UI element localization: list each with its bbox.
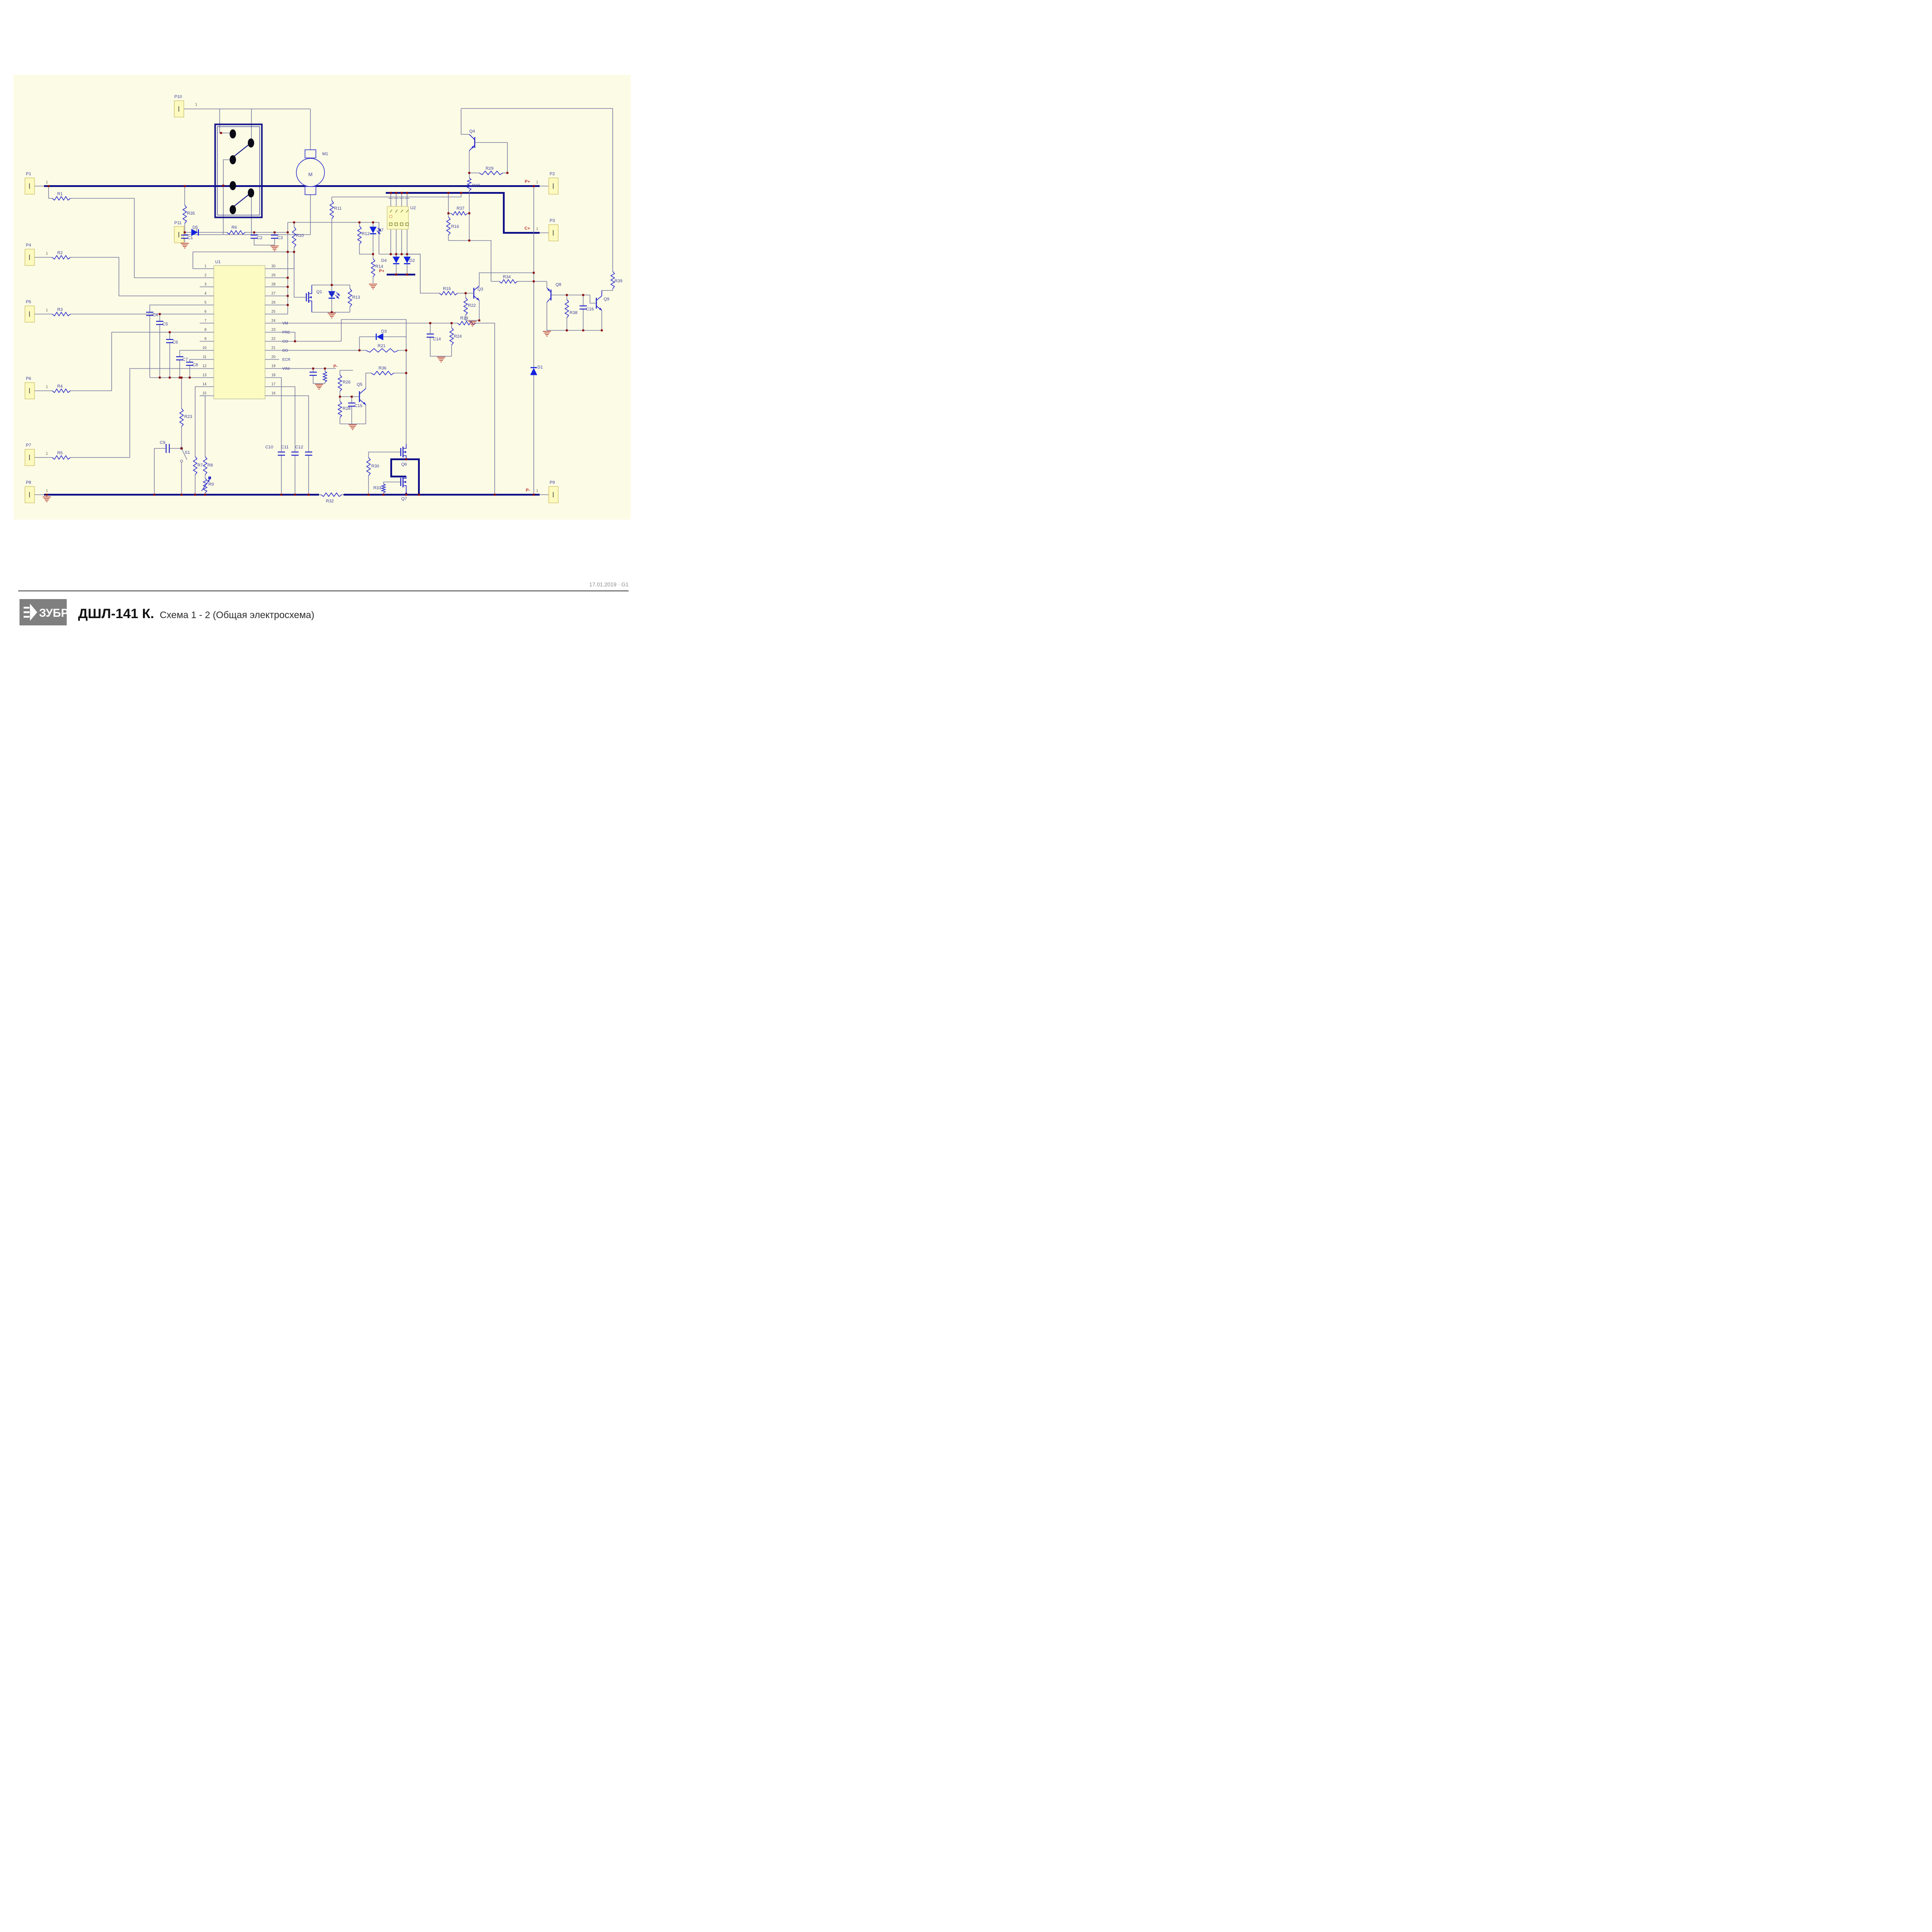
label-Q6: Q6 [401, 462, 407, 467]
label-D3: D3 [381, 329, 387, 334]
pin-number: 9 [205, 337, 207, 341]
junction-dot [390, 253, 392, 255]
label-P11: P11 [174, 221, 182, 226]
junction-dot [372, 253, 374, 255]
connector-P9 [549, 487, 558, 503]
label-D7: D7 [378, 228, 383, 233]
pin-number: 1 [205, 264, 207, 268]
junction-dot [601, 329, 603, 331]
label-P7: P7 [26, 443, 31, 448]
connector-P5 [25, 306, 34, 322]
ic-U2-pin1-mark [389, 215, 392, 218]
connector-P3 [549, 225, 558, 241]
pin-number: 24 [271, 319, 275, 323]
connector-P10 [174, 101, 184, 117]
label-P6: P6 [26, 376, 31, 381]
label-R23: R23 [184, 414, 192, 419]
label-C8: C8 [192, 363, 198, 368]
label-C4: C4 [152, 313, 158, 318]
switch-contact [248, 188, 254, 197]
connector-P8 [25, 487, 34, 503]
junction-dot [533, 494, 535, 496]
pin-name-DO: DO [282, 348, 288, 353]
junction-dot [293, 251, 295, 253]
pin-number: 10 [202, 346, 206, 350]
junction-dot [184, 231, 186, 233]
label-R9: R9 [208, 482, 214, 487]
pin-number: 25 [271, 310, 275, 314]
label-1: 1 [46, 180, 48, 184]
label-1: 1 [46, 251, 48, 256]
label-D1: D1 [537, 365, 543, 370]
junction-dot [447, 212, 449, 214]
connector-P6 [25, 383, 34, 399]
label-R3: R3 [57, 307, 63, 312]
junction-dot [405, 494, 407, 496]
pin-name-ECR: ECR [282, 357, 290, 362]
label-C16: C16 [586, 307, 594, 312]
label-1: 1 [195, 103, 197, 107]
label-C1: C1 [187, 236, 193, 241]
label-R29: R29 [486, 166, 493, 171]
label-R11: R11 [334, 206, 342, 211]
junction-dot [405, 458, 407, 460]
label-R12: R12 [362, 231, 369, 236]
label-R22: R22 [468, 303, 476, 308]
potentiometer-tap [208, 477, 211, 479]
label-1: 1 [536, 227, 539, 231]
label-R27: R27 [472, 183, 480, 188]
label-R39: R39 [615, 279, 622, 284]
label-P4: P4 [26, 243, 31, 248]
pin-name-PRE: PRE [282, 330, 290, 334]
label-C7: C7 [182, 357, 188, 362]
label-P3: P3 [550, 218, 555, 223]
junction-dot [351, 396, 353, 398]
pin-number: 2 [205, 273, 207, 277]
label-P5: P5 [26, 300, 31, 305]
label-C12: C12 [295, 445, 303, 450]
label-R32: R32 [326, 499, 334, 504]
pin-number: 27 [271, 291, 275, 295]
junction-dot [294, 340, 296, 342]
junction-dot [287, 277, 289, 279]
junction-dot [308, 494, 310, 496]
junction-dot [253, 231, 255, 233]
label-R16: R16 [451, 224, 459, 229]
junction-dot [395, 253, 397, 255]
label-R1: R1 [57, 192, 63, 197]
label-R14: R14 [375, 264, 383, 269]
label-C5: C5 [162, 322, 168, 327]
junction-dot [533, 272, 535, 274]
label-R28: R28 [343, 406, 350, 411]
label-1: 1 [536, 180, 539, 184]
pin-name-CO: CO [282, 339, 288, 344]
junction-dot [383, 494, 384, 496]
junction-dot [406, 274, 408, 275]
label-1: 1 [46, 452, 48, 456]
label-R5: R5 [57, 451, 63, 456]
junction-dot [312, 368, 314, 369]
junction-dot [159, 377, 161, 379]
label-Q1: Q1 [316, 290, 322, 295]
junction-dot [220, 132, 222, 134]
switch-contact [230, 129, 236, 138]
junction-dot [395, 274, 397, 275]
junction-dot [181, 447, 182, 449]
junction-dot [169, 377, 171, 379]
pin-number: 14 [202, 382, 206, 386]
junction-dot [287, 231, 289, 233]
label-S1: S1 [185, 450, 190, 455]
label-C11: C11 [281, 445, 289, 450]
junction-dot [401, 192, 403, 194]
pin-number: 21 [271, 346, 275, 350]
junction-dot [287, 286, 289, 288]
pin-number: 20 [271, 355, 275, 359]
label-C+: C+ [525, 226, 531, 231]
junction-dot [401, 253, 403, 255]
junction-dot [405, 349, 407, 351]
junction-dot [451, 322, 452, 324]
junction-dot [46, 494, 48, 496]
label-R33: R33 [374, 486, 381, 491]
junction-dot [159, 313, 161, 315]
pin-number: 15 [202, 391, 206, 395]
pin-name-VINI: VINI [282, 366, 290, 371]
label-Q5: Q5 [357, 382, 363, 387]
pin-number: 4 [205, 291, 207, 295]
label-P-: P- [526, 488, 531, 493]
pin-number: 13 [202, 373, 206, 377]
label-R21: R21 [378, 344, 385, 349]
label-P9: P9 [550, 480, 555, 485]
junction-dot [460, 192, 462, 194]
junction-dot [506, 172, 508, 174]
junction-dot [274, 231, 275, 233]
label-C3: C3 [277, 236, 283, 241]
label-P+: P+ [379, 269, 384, 274]
label-R36: R36 [379, 366, 386, 371]
junction-dot [331, 284, 333, 286]
junction-dot [368, 494, 369, 496]
revision-date: 17.01.2019 · G1 [589, 581, 629, 588]
switch-contact [230, 155, 236, 164]
junction-dot [447, 192, 449, 194]
pin-number: 26 [271, 300, 275, 305]
connector-P2 [549, 178, 558, 194]
junction-dot [153, 494, 155, 496]
junction-dot [294, 494, 296, 496]
label-R35: R35 [187, 211, 195, 216]
label-M: M [308, 172, 312, 177]
junction-dot [566, 329, 568, 331]
label-1: 1 [46, 385, 48, 389]
label-R13: R13 [352, 295, 360, 300]
label-R4: R4 [57, 384, 63, 389]
pin-number: 19 [271, 364, 275, 368]
junction-dot [395, 192, 397, 194]
switch-contact [230, 205, 236, 214]
schematic-sheet [14, 75, 631, 520]
junction-dot [468, 212, 470, 214]
brand-logo: ЗУБР [20, 599, 69, 625]
label-R15: R15 [443, 286, 451, 291]
label-P-: P- [334, 364, 338, 369]
ic-U1-body [214, 265, 265, 399]
junction-dot [478, 320, 480, 321]
junction-dot [566, 294, 568, 296]
ic-U2-ref: U2 [410, 206, 416, 211]
junction-dot [372, 221, 374, 223]
pin-number: 12 [202, 364, 206, 368]
junction-dot [533, 185, 535, 187]
label-P+: P+ [525, 179, 530, 184]
junction-dot [194, 494, 196, 496]
label-R34: R34 [503, 275, 511, 280]
label-Q8: Q8 [556, 282, 561, 287]
schematic-canvas: U1130229328427526625724VM823PRE922CO1021… [0, 0, 644, 644]
label-R26: R26 [343, 380, 350, 385]
label-Q9: Q9 [604, 297, 610, 302]
pin-number: 18 [271, 373, 275, 377]
switch-contact [230, 181, 236, 190]
junction-dot [189, 377, 191, 379]
junction-dot [184, 185, 186, 187]
label-P8: P8 [26, 480, 31, 485]
schema-subtitle: Схема 1 - 2 (Общая электросхема) [160, 610, 315, 620]
pin-number: 3 [205, 282, 207, 286]
connector-P1 [25, 178, 34, 194]
connector-P4 [25, 249, 34, 265]
junction-dot [339, 396, 341, 398]
junction-dot [429, 322, 431, 324]
motor-brush-top [305, 150, 316, 158]
junction-dot [179, 377, 181, 379]
junction-dot [324, 368, 326, 369]
junction-dot [204, 494, 206, 496]
junction-dot [405, 372, 407, 374]
pin-number: 7 [205, 319, 207, 323]
label-C15: C15 [354, 403, 362, 408]
pin-number: 6 [205, 310, 207, 314]
pin-number: 11 [203, 355, 207, 359]
motor-brush-bottom [305, 187, 316, 195]
label-R37: R37 [457, 206, 464, 211]
label-1: 1 [536, 489, 539, 493]
junction-dot [280, 494, 282, 496]
pin-number: 30 [271, 264, 275, 268]
label-C2: C2 [257, 236, 262, 241]
label-R10: R10 [296, 233, 304, 238]
connector-P7 [25, 449, 34, 466]
label-P10: P10 [174, 94, 182, 99]
junction-dot [287, 304, 289, 306]
pin-number: 5 [205, 300, 207, 305]
label-R38: R38 [570, 310, 577, 315]
label-R30: R30 [371, 464, 379, 469]
junction-dot [582, 294, 584, 296]
junction-dot [181, 494, 182, 496]
label-R6: R6 [231, 225, 237, 230]
ic-U1-ref: U1 [215, 260, 221, 265]
product-title: ДШЛ-141 К. [78, 606, 154, 621]
label-Q3: Q3 [477, 287, 483, 292]
pin-number: 28 [271, 282, 275, 286]
junction-dot [181, 377, 182, 379]
junction-dot [406, 253, 408, 255]
pin-name-VM: VM [282, 321, 288, 325]
junction-dot [582, 329, 584, 331]
junction-dot [406, 192, 408, 194]
label-R19: R19 [460, 316, 468, 321]
label-C6: C6 [172, 340, 178, 345]
junction-dot [533, 280, 535, 282]
junction-dot [287, 251, 289, 253]
label-Q4: Q4 [469, 129, 475, 134]
junction-dot [359, 221, 360, 223]
label-R2: R2 [57, 251, 63, 256]
junction-dot [48, 185, 49, 187]
label-D4: D4 [381, 258, 387, 263]
page: U1130229328427526625724VM823PRE922CO1021… [0, 0, 644, 644]
label-D6: D6 [329, 291, 334, 296]
junction-dot [293, 221, 295, 223]
label-D2: D2 [409, 258, 415, 263]
junction-dot [468, 172, 470, 174]
pin-number: 16 [271, 391, 275, 395]
pin-number: 22 [271, 337, 275, 341]
junction-dot [169, 331, 171, 333]
junction-dot [359, 349, 360, 351]
label-D5: D5 [192, 225, 198, 230]
junction-dot [287, 295, 289, 297]
label-R8: R8 [207, 463, 213, 468]
pin-number: 8 [205, 328, 207, 332]
pin-number: 17 [271, 382, 275, 386]
junction-dot [222, 185, 224, 187]
label-P1: P1 [26, 172, 31, 177]
logo-text: ЗУБР [39, 607, 69, 619]
label-C14: C14 [433, 337, 441, 342]
junction-dot [465, 292, 467, 294]
label-Q7: Q7 [401, 497, 407, 501]
junction-dot [390, 192, 392, 194]
label-M1: M1 [322, 152, 328, 157]
label-R24: R24 [454, 334, 462, 339]
junction-dot [468, 240, 470, 241]
label-1: 1 [46, 308, 48, 312]
label-1: 1 [46, 489, 48, 493]
label-C9: C9 [160, 440, 165, 445]
label-R7: R7 [197, 463, 203, 468]
pin-number: 29 [271, 273, 275, 277]
switch-contact [248, 138, 254, 147]
junction-dot [494, 494, 496, 496]
junction-dot [418, 494, 420, 496]
pin-number: 23 [271, 328, 275, 332]
label-C10: C10 [265, 445, 273, 450]
label-P2: P2 [550, 172, 555, 177]
